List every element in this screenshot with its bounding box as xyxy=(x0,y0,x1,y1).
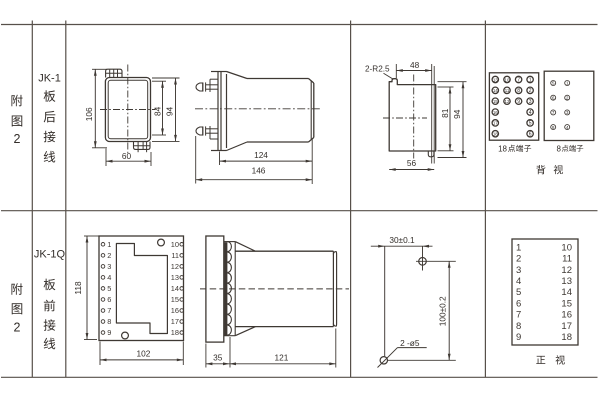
svg-text:4: 4 xyxy=(107,273,111,282)
svg-text:2: 2 xyxy=(529,88,532,94)
svg-text:12: 12 xyxy=(561,265,572,276)
svg-text:6: 6 xyxy=(529,132,532,138)
svg-text:11: 11 xyxy=(505,88,510,93)
svg-text:124: 124 xyxy=(254,150,268,160)
svg-text:48: 48 xyxy=(410,60,420,70)
svg-text:2: 2 xyxy=(107,251,111,260)
svg-text:8: 8 xyxy=(557,144,562,153)
svg-text:14: 14 xyxy=(171,284,179,293)
svg-text:17: 17 xyxy=(493,121,498,126)
svg-text:15: 15 xyxy=(561,298,572,309)
svg-text:1: 1 xyxy=(566,81,569,86)
svg-text:18: 18 xyxy=(498,144,507,153)
svg-text:15: 15 xyxy=(171,295,179,304)
svg-text:35: 35 xyxy=(213,353,223,363)
svg-text:2-R2.5: 2-R2.5 xyxy=(365,65,390,74)
svg-text:17: 17 xyxy=(561,321,572,332)
svg-text:1: 1 xyxy=(516,242,521,253)
svg-text:JK-1Q: JK-1Q xyxy=(34,248,66,260)
svg-text:10: 10 xyxy=(171,240,179,249)
svg-text:12: 12 xyxy=(505,99,510,104)
svg-text:11: 11 xyxy=(171,251,179,260)
svg-text:15: 15 xyxy=(493,99,498,104)
svg-text:18: 18 xyxy=(493,132,498,137)
svg-text:81: 81 xyxy=(440,108,450,118)
svg-text:94: 94 xyxy=(452,109,462,119)
svg-text:5: 5 xyxy=(107,284,111,293)
svg-text:2: 2 xyxy=(14,320,21,334)
svg-text:14: 14 xyxy=(561,287,572,298)
svg-text:100±0.2: 100±0.2 xyxy=(438,296,448,326)
svg-text:4: 4 xyxy=(566,125,569,130)
svg-text:2 -ø5: 2 -ø5 xyxy=(400,338,420,348)
svg-text:5: 5 xyxy=(516,287,521,298)
svg-text:3: 3 xyxy=(529,99,532,105)
svg-text:8: 8 xyxy=(517,88,520,94)
svg-text:7: 7 xyxy=(516,310,521,321)
svg-text:7: 7 xyxy=(107,306,111,315)
svg-text:121: 121 xyxy=(274,353,288,363)
svg-text:13: 13 xyxy=(493,77,498,82)
svg-text:3: 3 xyxy=(566,110,569,115)
svg-text:8: 8 xyxy=(516,321,521,332)
svg-text:8: 8 xyxy=(552,125,555,130)
svg-text:17: 17 xyxy=(171,317,179,326)
svg-text:18: 18 xyxy=(171,328,179,337)
svg-text:10: 10 xyxy=(505,77,510,82)
svg-text:12: 12 xyxy=(171,262,179,271)
svg-text:5: 5 xyxy=(529,121,532,127)
svg-text:1: 1 xyxy=(107,240,111,249)
svg-text:11: 11 xyxy=(562,254,572,265)
svg-text:16: 16 xyxy=(561,310,572,321)
svg-text:3: 3 xyxy=(107,262,111,271)
svg-text:8: 8 xyxy=(107,317,111,326)
svg-text:94: 94 xyxy=(165,107,175,117)
svg-text:2: 2 xyxy=(516,254,521,265)
svg-text:6: 6 xyxy=(107,295,111,304)
svg-text:10: 10 xyxy=(561,242,572,253)
svg-text:106: 106 xyxy=(84,107,94,121)
svg-text:6: 6 xyxy=(552,95,555,100)
svg-text:9: 9 xyxy=(517,99,520,105)
svg-text:1: 1 xyxy=(529,77,532,83)
svg-text:60: 60 xyxy=(122,151,132,161)
svg-text:2: 2 xyxy=(566,95,569,100)
svg-text:56: 56 xyxy=(407,158,417,168)
svg-text:16: 16 xyxy=(171,306,179,315)
svg-text:4: 4 xyxy=(516,276,521,287)
svg-text:3: 3 xyxy=(516,265,521,276)
svg-text:7: 7 xyxy=(552,110,555,115)
svg-text:118: 118 xyxy=(73,281,83,295)
svg-text:JK-1: JK-1 xyxy=(38,73,61,85)
svg-text:9: 9 xyxy=(516,332,521,343)
svg-text:5: 5 xyxy=(552,81,555,86)
svg-text:9: 9 xyxy=(107,328,111,337)
svg-text:30±0.1: 30±0.1 xyxy=(389,235,415,245)
svg-text:84: 84 xyxy=(152,106,162,116)
svg-text:13: 13 xyxy=(561,276,572,287)
svg-text:4: 4 xyxy=(529,110,532,116)
svg-text:6: 6 xyxy=(516,298,521,309)
svg-text:7: 7 xyxy=(517,77,520,83)
svg-text:146: 146 xyxy=(252,166,266,176)
svg-text:13: 13 xyxy=(171,273,179,282)
svg-text:14: 14 xyxy=(493,88,498,93)
svg-text:16: 16 xyxy=(493,110,498,115)
svg-text:18: 18 xyxy=(561,332,572,343)
svg-text:2: 2 xyxy=(14,132,21,146)
svg-text:102: 102 xyxy=(136,348,150,358)
